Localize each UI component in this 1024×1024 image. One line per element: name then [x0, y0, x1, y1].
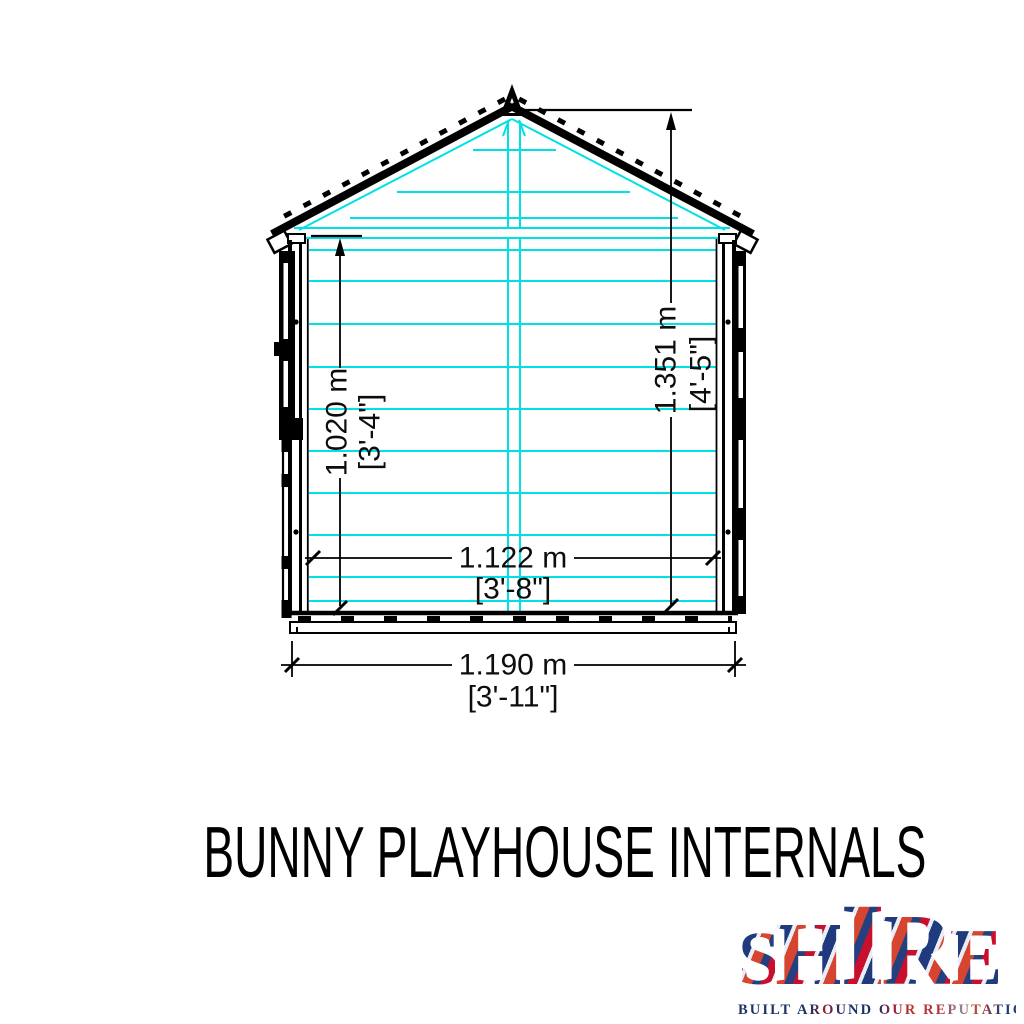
- dim-internal-width-metric: 1.122 m: [459, 542, 567, 575]
- arrow-up-icon: [666, 112, 676, 130]
- shire-logo: SHIRE BUILT AROUND OUR REPUTATION: [738, 886, 1016, 1019]
- door-handle-bracket: [279, 418, 303, 440]
- dim-ridge-height: 1.351 m [4'-5"]: [516, 110, 718, 613]
- shire-wordmark: SHIRE: [738, 886, 1016, 1004]
- left-door-edge-profile: [274, 251, 303, 618]
- right-corner-trim: [736, 251, 746, 614]
- logo-letter-s: S: [738, 917, 775, 1001]
- right-fascia: [734, 231, 758, 253]
- dim-internal-height-metric: 1.020 m: [321, 368, 354, 476]
- door-hinge: [274, 342, 280, 356]
- logo-letter-h: H: [775, 905, 840, 1004]
- gable-truss: [294, 119, 730, 238]
- right-wall: [717, 234, 737, 613]
- base-rail: [290, 622, 736, 633]
- drawing-title-text: BUNNY PLAYHOUSE INTERNALS: [203, 817, 926, 889]
- floor: [287, 613, 738, 633]
- dim-ridge-height-imperial: [4'-5"]: [685, 336, 718, 412]
- dim-external-width: 1.190 m [3'-11"]: [281, 641, 746, 714]
- page: { "title": { "text": "BUNNY PLAYHOUSE IN…: [0, 0, 1024, 1024]
- logo-letter-i: I: [840, 879, 881, 1010]
- dim-external-width-imperial: [3'-11"]: [468, 681, 559, 714]
- dim-external-width-metric: 1.190 m: [459, 649, 567, 682]
- arrow-up-icon: [335, 238, 345, 256]
- dim-internal-height-imperial: [3'-4"]: [354, 394, 387, 470]
- shire-tagline: BUILT AROUND OUR REPUTATION: [738, 1002, 1016, 1019]
- dim-internal-width: 1.122 m [3'-8"]: [305, 542, 721, 606]
- dim-internal-width-imperial: [3'-8"]: [475, 573, 551, 606]
- logo-letter-e: E: [950, 914, 998, 1002]
- logo-letter-r: R: [881, 894, 950, 1007]
- dim-ridge-height-metric: 1.351 m: [650, 306, 683, 414]
